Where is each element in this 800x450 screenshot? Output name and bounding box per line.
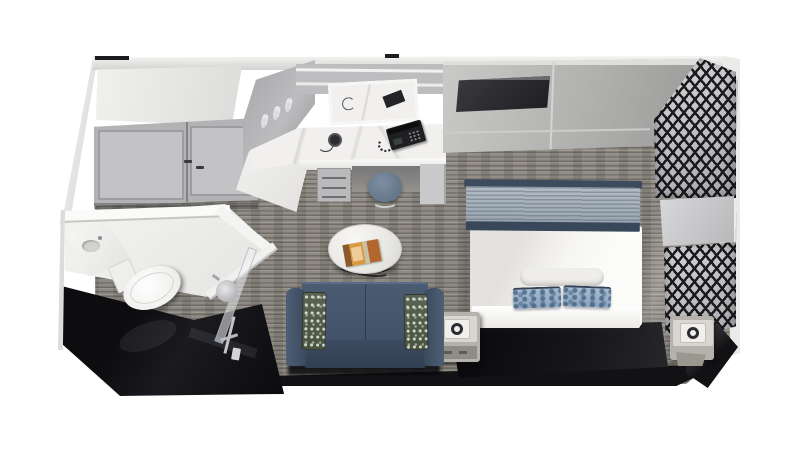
wall-edge-accent xyxy=(385,54,399,58)
telephone-screen xyxy=(393,137,403,145)
bed-runner xyxy=(464,179,642,232)
tv xyxy=(456,76,550,112)
bathroom xyxy=(58,198,294,400)
vanity-mirror xyxy=(328,79,419,126)
stool-legs xyxy=(372,196,398,208)
desk-side-panel xyxy=(420,164,446,204)
wall-panel xyxy=(96,66,242,126)
right-wall-panel xyxy=(660,196,734,246)
wall-edge-accent xyxy=(95,56,129,60)
wardrobe-door-left xyxy=(98,130,184,200)
white-bolster-pillow xyxy=(520,268,604,286)
left-wall xyxy=(58,56,98,221)
blue-pillow-right xyxy=(563,285,612,308)
lampshade-ring xyxy=(451,323,463,335)
sink-basin xyxy=(82,240,100,252)
mirror-reflection xyxy=(382,90,405,108)
accent-pillow-left xyxy=(301,292,326,350)
wardrobe xyxy=(94,118,258,206)
bed-sheet-edge xyxy=(472,306,640,328)
vanity-ledge xyxy=(296,68,446,73)
table-lamp xyxy=(444,319,470,339)
blue-pillow-left xyxy=(513,286,562,309)
runner-navy-trim xyxy=(466,221,640,232)
lampshade-ring xyxy=(687,327,699,339)
mirror-reflection xyxy=(342,97,356,111)
wardrobe-handle xyxy=(196,166,204,169)
hairdryer xyxy=(328,133,342,147)
runner-body xyxy=(466,186,640,224)
shower-head xyxy=(216,280,238,302)
accent-pillow-right xyxy=(404,294,429,350)
wardrobe-handle xyxy=(184,160,192,163)
stateroom-floorplan-render xyxy=(0,0,800,450)
wall-seam xyxy=(549,62,554,154)
telephone-keypad xyxy=(407,129,422,142)
wall-seam xyxy=(445,128,650,134)
vanity-drawers xyxy=(317,168,351,202)
sink-faucet xyxy=(98,236,102,240)
table-lamp xyxy=(680,323,706,343)
